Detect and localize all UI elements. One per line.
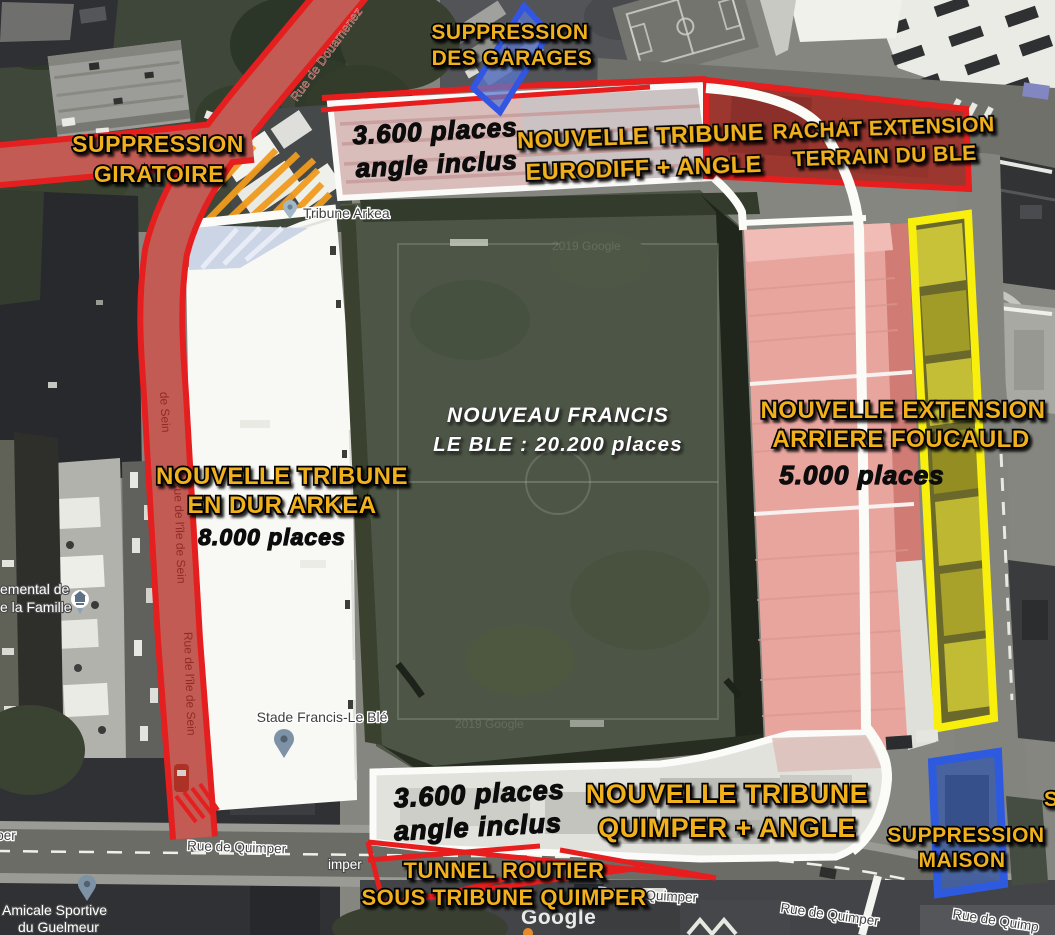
svg-text:5.000 places: 5.000 places — [779, 460, 944, 490]
svg-text:ARRIERE FOUCAULD: ARRIERE FOUCAULD — [772, 426, 1029, 453]
svg-text:e la Famille: e la Famille — [0, 599, 72, 615]
svg-text:du Guelmeur: du Guelmeur — [18, 919, 99, 935]
svg-text:Amicale Sportive: Amicale Sportive — [2, 902, 107, 918]
svg-text:DES GARAGES: DES GARAGES — [432, 47, 593, 70]
svg-text:imper: imper — [328, 857, 362, 872]
svg-text:imper: imper — [0, 828, 16, 843]
svg-text:de Sein: de Sein — [157, 391, 173, 432]
svg-text:Tribune Arkea: Tribune Arkea — [303, 205, 390, 221]
svg-text:Stade Francis-Le Blé: Stade Francis-Le Blé — [257, 709, 388, 725]
svg-text:SOUS TRIBUNE QUIMPER: SOUS TRIBUNE QUIMPER — [361, 885, 646, 910]
svg-text:emental de: emental de — [0, 581, 69, 597]
svg-text:SUPPRESSION: SUPPRESSION — [887, 824, 1044, 847]
svg-text:QUIMPER + ANGLE: QUIMPER + ANGLE — [598, 813, 856, 843]
svg-text:TUNNEL ROUTIER: TUNNEL ROUTIER — [404, 858, 605, 883]
svg-text:SUPPRESSION: SUPPRESSION — [431, 21, 588, 44]
svg-text:NOUVELLE TRIBUNE: NOUVELLE TRIBUNE — [586, 779, 869, 809]
svg-text:NOUVEAU FRANCIS: NOUVEAU FRANCIS — [447, 404, 669, 427]
svg-text:NOUVELLE EXTENSION: NOUVELLE EXTENSION — [760, 397, 1045, 424]
svg-text:LE BLE : 20.200 places: LE BLE : 20.200 places — [433, 433, 683, 456]
svg-text:NOUVELLE TRIBUNE: NOUVELLE TRIBUNE — [156, 463, 408, 490]
svg-text:2019 Google: 2019 Google — [455, 717, 524, 731]
svg-text:8.000 places: 8.000 places — [198, 524, 346, 550]
svg-text:SUPPRESSION: SUPPRESSION — [72, 131, 244, 157]
svg-text:MAISON: MAISON — [919, 849, 1006, 872]
svg-text:EN DUR ARKEA: EN DUR ARKEA — [187, 492, 376, 519]
svg-text:2019 Google: 2019 Google — [552, 239, 621, 253]
svg-text:GIRATOIRE: GIRATOIRE — [94, 161, 224, 187]
svg-text:S: S — [1044, 788, 1055, 811]
